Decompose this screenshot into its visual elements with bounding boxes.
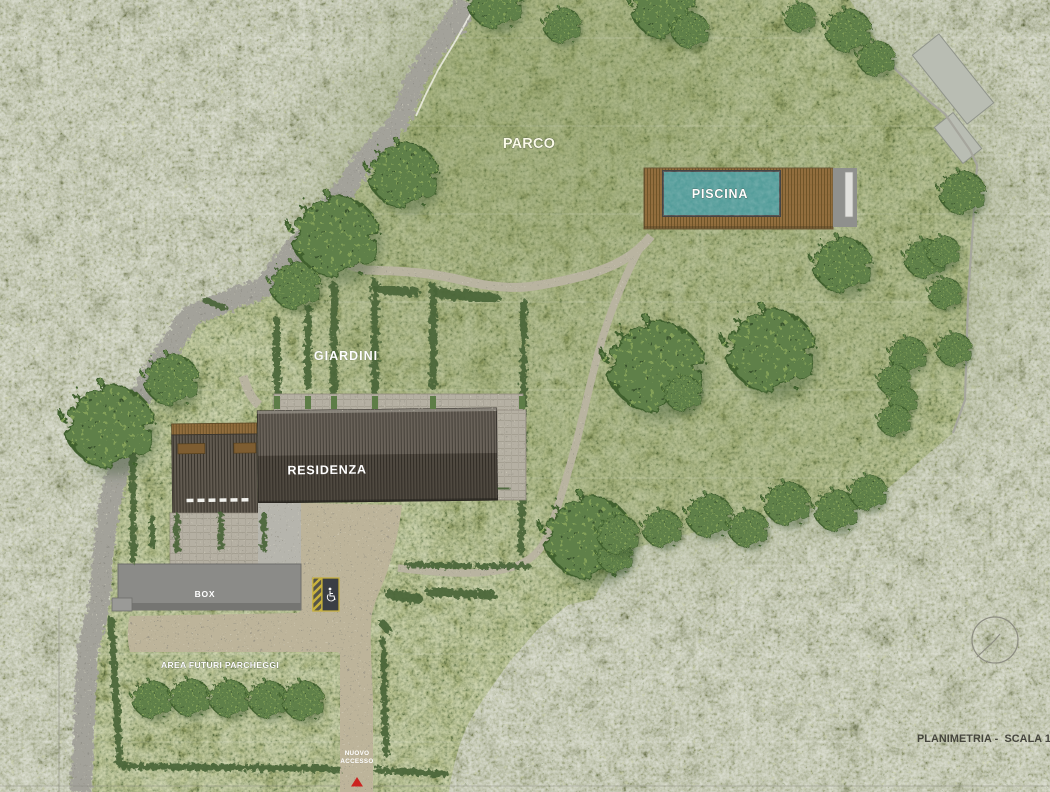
svg-text:BOX: BOX: [195, 589, 216, 599]
svg-text:ACCESSO: ACCESSO: [340, 758, 373, 765]
svg-text:NUOVO: NUOVO: [345, 750, 370, 757]
svg-text:PLANIMETRIA - SCALA 1:2: PLANIMETRIA - SCALA 1:2: [917, 733, 1050, 745]
svg-text:AREA FUTURI PARCHEGGI: AREA FUTURI PARCHEGGI: [161, 660, 279, 670]
